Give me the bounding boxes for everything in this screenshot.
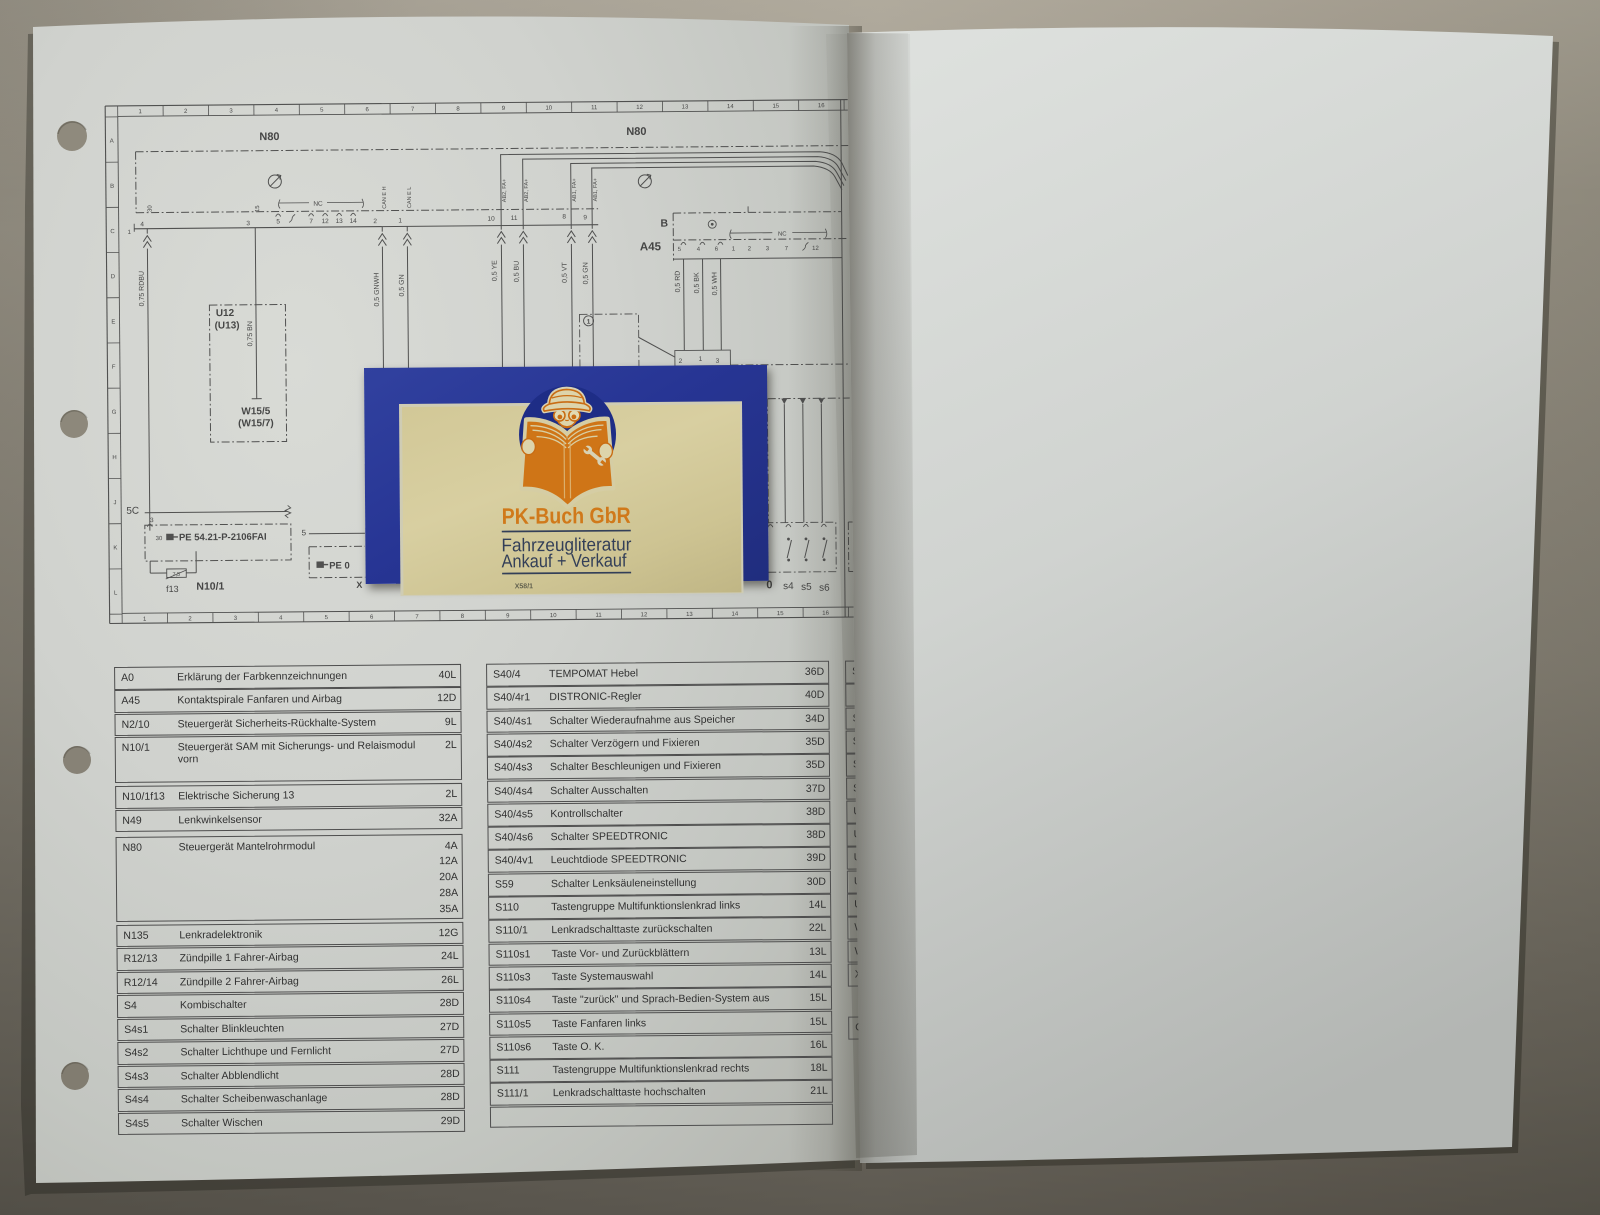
svg-text:X58/1: X58/1	[515, 583, 533, 590]
svg-text:Ankauf + Verkauf: Ankauf + Verkauf	[501, 549, 627, 571]
svg-text:PK-Buch GbR: PK-Buch GbR	[502, 503, 631, 529]
